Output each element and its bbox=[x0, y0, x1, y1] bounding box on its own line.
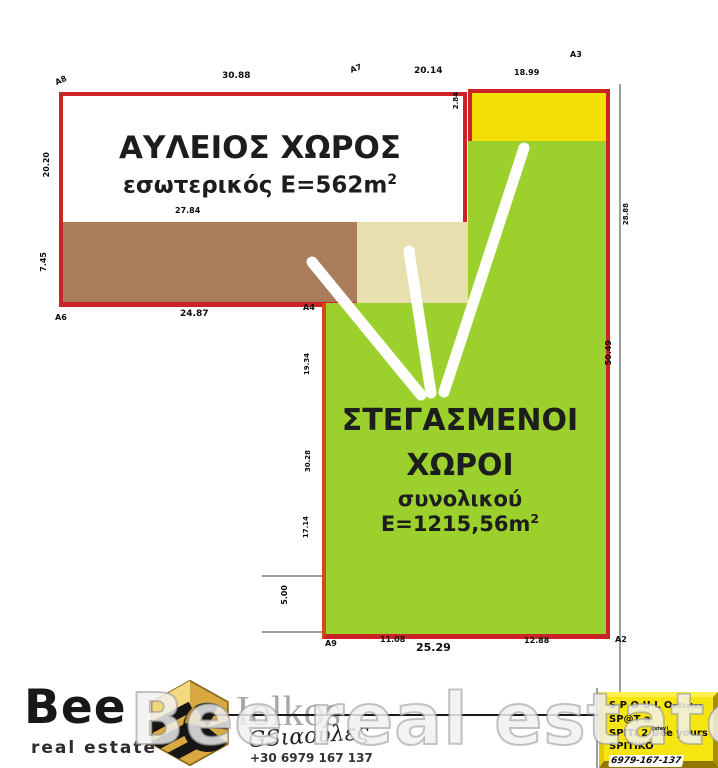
promo-line1: S P O U L OeStates bbox=[609, 699, 711, 713]
courtyard-area-label: εσωτερικός E=562m2 bbox=[110, 172, 410, 199]
measure-green-left3: 17.14 bbox=[302, 516, 310, 538]
point-a6: A6 bbox=[55, 313, 67, 322]
notch-measure-line-bottom bbox=[262, 631, 324, 633]
covered-area-text: συνολικού E=1215,56m bbox=[381, 487, 530, 536]
promo-phone: 6979-167-137 bbox=[608, 755, 684, 767]
building-area-brown bbox=[59, 222, 357, 307]
measure-green-left2: 30.28 bbox=[304, 450, 312, 472]
measure-bottom3: 12.88 bbox=[524, 636, 549, 645]
bee-hexagon-logo-icon bbox=[146, 679, 234, 767]
measure-right1: 28.88 bbox=[622, 203, 630, 225]
promo-line4: SPITIKO 6979-167-137 bbox=[609, 740, 711, 768]
covered-title-line2: ΧΩΡΟΙ bbox=[340, 448, 580, 483]
courtyard-area-sup: 2 bbox=[387, 172, 397, 188]
point-a7: A7 bbox=[349, 62, 363, 74]
courtyard-area-text: εσωτερικός E=562m bbox=[123, 173, 387, 199]
promo-line2: SP@T a bbox=[609, 713, 711, 727]
building-area-beige bbox=[357, 222, 468, 303]
covered-area-upper bbox=[468, 141, 610, 305]
bee-brand-subtitle: real estate bbox=[31, 738, 157, 758]
site-plan-page: ΑΥΛΕΙΟΣ ΧΩΡΟΣ εσωτερικός E=562m2 ΣΤΕΓΑΣΜ… bbox=[0, 0, 718, 768]
measure-top2: 20.14 bbox=[414, 66, 442, 76]
measure-brown-bottom: 24.87 bbox=[180, 309, 208, 319]
bee-brand-title: Bee bbox=[24, 680, 127, 735]
measure-right2: 50.49 bbox=[604, 340, 613, 365]
courtyard-title: ΑΥΛΕΙΟΣ ΧΩΡΟΣ bbox=[100, 130, 420, 166]
measure-top3: 18.99 bbox=[514, 68, 539, 77]
measure-left2: 7.45 bbox=[39, 252, 48, 272]
measure-yellow-left: 2.84 bbox=[452, 92, 460, 109]
measure-notch: 5.00 bbox=[280, 585, 289, 605]
covered-area-label: συνολικού E=1215,56m2 bbox=[330, 487, 590, 536]
measure-bottom1: 11.08 bbox=[380, 635, 405, 644]
measure-courtyard-bottom: 27.84 bbox=[175, 206, 200, 215]
building-area-yellow bbox=[468, 89, 610, 141]
promo-line1-suffix: eStates bbox=[672, 702, 702, 710]
promo-line4-label: SPITIKO bbox=[609, 741, 654, 752]
measure-left1: 20.20 bbox=[42, 152, 51, 177]
covered-title-line1: ΣΤΕΓΑΣΜΕΝΟΙ bbox=[340, 403, 580, 438]
right-survey-line bbox=[619, 84, 621, 696]
promo-line3-note: (stay) bbox=[652, 726, 668, 732]
point-a8: A8 bbox=[54, 74, 68, 87]
covered-area-sup: 2 bbox=[530, 511, 539, 526]
point-a4: A4 bbox=[303, 303, 315, 312]
notch-measure-line-top bbox=[262, 575, 324, 577]
promo-line1-main: S P O U L O bbox=[609, 700, 672, 711]
agent-phone: +30 6979 167 137 bbox=[250, 751, 373, 765]
measure-bottom2: 25.29 bbox=[416, 641, 451, 654]
measure-green-left1: 19.34 bbox=[303, 353, 311, 375]
point-a3: A3 bbox=[570, 50, 582, 59]
point-a2: A2 bbox=[615, 635, 627, 644]
measure-top1: 30.88 bbox=[222, 71, 250, 81]
right-survey-line-lower bbox=[596, 688, 598, 768]
point-a9: A9 bbox=[325, 639, 337, 648]
